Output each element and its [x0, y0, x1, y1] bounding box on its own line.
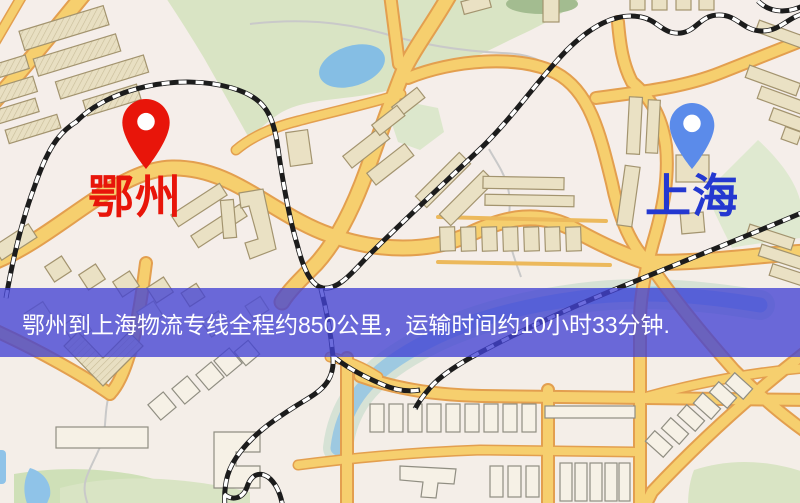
destination-city-label: 上海 — [645, 173, 739, 219]
destination-pin-icon[interactable] — [666, 103, 718, 169]
origin-pin-icon[interactable] — [122, 99, 170, 169]
route-info-banner: 鄂州到上海物流专线全程约850公里，运输时间约10小时33分钟. — [0, 288, 800, 357]
origin-city-label: 鄂州 — [88, 174, 182, 220]
map-canvas — [0, 0, 800, 503]
route-info-text: 鄂州到上海物流专线全程约850公里，运输时间约10小时33分钟. — [0, 306, 670, 340]
map-screenshot: 鄂州 上海 鄂州到上海物流专线全程约850公里，运输时间约10小时33分钟. — [0, 0, 800, 503]
